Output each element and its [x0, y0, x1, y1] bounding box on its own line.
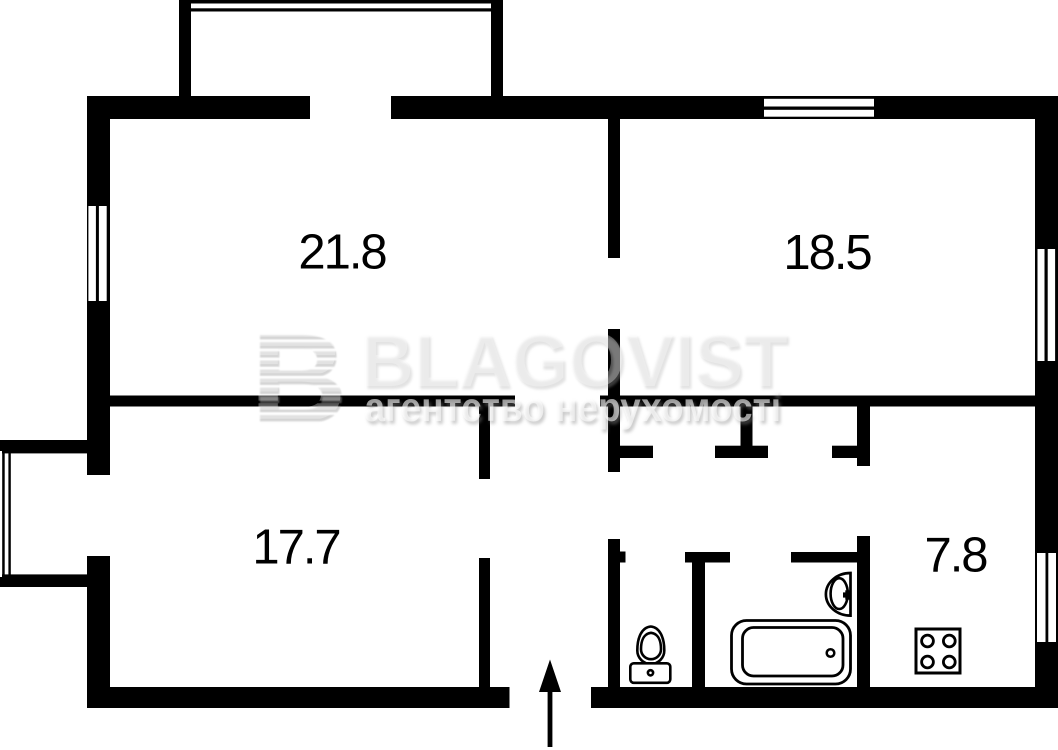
svg-text:18.5: 18.5	[783, 226, 871, 280]
svg-text:21.8: 21.8	[298, 226, 386, 280]
svg-text:агентство нерухомості: агентство нерухомості	[365, 384, 782, 430]
svg-text:B: B	[250, 306, 347, 449]
svg-text:17.7: 17.7	[252, 520, 339, 574]
svg-text:7.8: 7.8	[924, 529, 987, 583]
